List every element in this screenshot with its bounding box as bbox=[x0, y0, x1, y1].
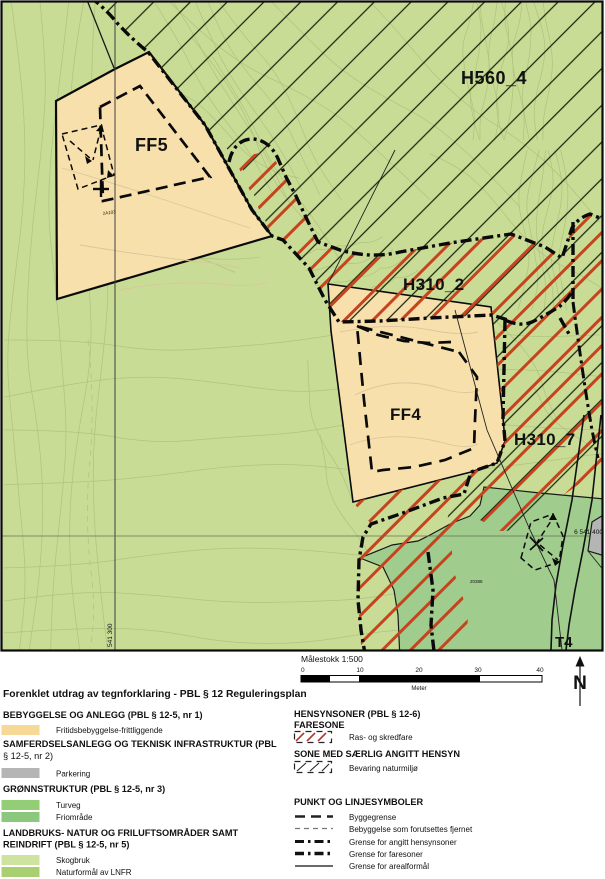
svg-text:Turveg: Turveg bbox=[56, 801, 81, 810]
svg-text:FARESONE: FARESONE bbox=[294, 720, 345, 730]
svg-text:10: 10 bbox=[356, 667, 364, 674]
svg-text:Bebyggelse som forutsettes fje: Bebyggelse som forutsettes fjernet bbox=[349, 825, 473, 834]
svg-text:Friområde: Friområde bbox=[56, 813, 93, 822]
svg-text:Grense for angitt hensynsoner: Grense for angitt hensynsoner bbox=[349, 838, 457, 847]
svg-text:Skogbruk: Skogbruk bbox=[56, 856, 91, 865]
svg-text:Byggegrense: Byggegrense bbox=[349, 813, 397, 822]
svg-text:SAMFERDSELSANLEGG OG TEKNISK I: SAMFERDSELSANLEGG OG TEKNISK INFRASTRUKT… bbox=[3, 739, 277, 749]
svg-text:HENSYNSONER (PBL § 12-6): HENSYNSONER (PBL § 12-6) bbox=[294, 709, 420, 719]
svg-text:REINDRIFT (PBL § 12-5, nr 5): REINDRIFT (PBL § 12-5, nr 5) bbox=[3, 840, 129, 850]
svg-text:Grense for arealformål: Grense for arealformål bbox=[349, 862, 429, 871]
svg-text:Målestokk 1:500: Målestokk 1:500 bbox=[301, 654, 363, 664]
svg-text:541 300: 541 300 bbox=[107, 623, 114, 647]
svg-text:Meter: Meter bbox=[411, 686, 426, 692]
svg-text:Bevaring naturmiljø: Bevaring naturmiljø bbox=[349, 764, 418, 773]
svg-text:FF5: FF5 bbox=[135, 135, 168, 155]
svg-text:LANDBRUKS- NATUR OG FRILUFTSOM: LANDBRUKS- NATUR OG FRILUFTSOMRÅDER SAMT bbox=[3, 828, 238, 838]
svg-text:SONE MED SÆRLIG ANGITT HENSYN: SONE MED SÆRLIG ANGITT HENSYN bbox=[294, 749, 460, 759]
svg-text:Parkering: Parkering bbox=[56, 770, 90, 779]
svg-text:Ras- og skredfare: Ras- og skredfare bbox=[349, 733, 413, 742]
svg-text:0: 0 bbox=[301, 667, 305, 674]
svg-text:Grense for faresoner: Grense for faresoner bbox=[349, 850, 423, 859]
svg-text:BEBYGGELSE OG ANLEGG (PBL § 12: BEBYGGELSE OG ANLEGG (PBL § 12-5, nr 1) bbox=[3, 710, 203, 720]
svg-text:Forenklet utdrag av tegnforkla: Forenklet utdrag av tegnforklaring - PBL… bbox=[3, 689, 307, 700]
svg-text:Fritidsbebyggelse-frittliggend: Fritidsbebyggelse-frittliggende bbox=[56, 726, 163, 735]
svg-text:20: 20 bbox=[415, 667, 423, 674]
svg-text:H310_2: H310_2 bbox=[403, 275, 464, 294]
svg-text:H560_4: H560_4 bbox=[461, 68, 527, 88]
svg-text:FF4: FF4 bbox=[390, 405, 421, 424]
svg-text:20388: 20388 bbox=[470, 579, 483, 584]
svg-text:40: 40 bbox=[536, 667, 544, 674]
svg-text:§ 12-5, nr 2): § 12-5, nr 2) bbox=[3, 751, 53, 761]
svg-text:6 541 400: 6 541 400 bbox=[574, 529, 603, 536]
svg-text:H310_7: H310_7 bbox=[514, 430, 575, 449]
svg-text:30: 30 bbox=[474, 667, 482, 674]
svg-text:N: N bbox=[573, 673, 587, 694]
svg-text:PUNKT OG LINJESYMBOLER: PUNKT OG LINJESYMBOLER bbox=[294, 797, 424, 807]
svg-text:T4: T4 bbox=[555, 634, 573, 651]
svg-text:Naturformål av LNFR: Naturformål av LNFR bbox=[56, 868, 132, 877]
svg-text:GRØNNSTRUKTUR (PBL § 12-5, nr: GRØNNSTRUKTUR (PBL § 12-5, nr 3) bbox=[3, 784, 165, 794]
